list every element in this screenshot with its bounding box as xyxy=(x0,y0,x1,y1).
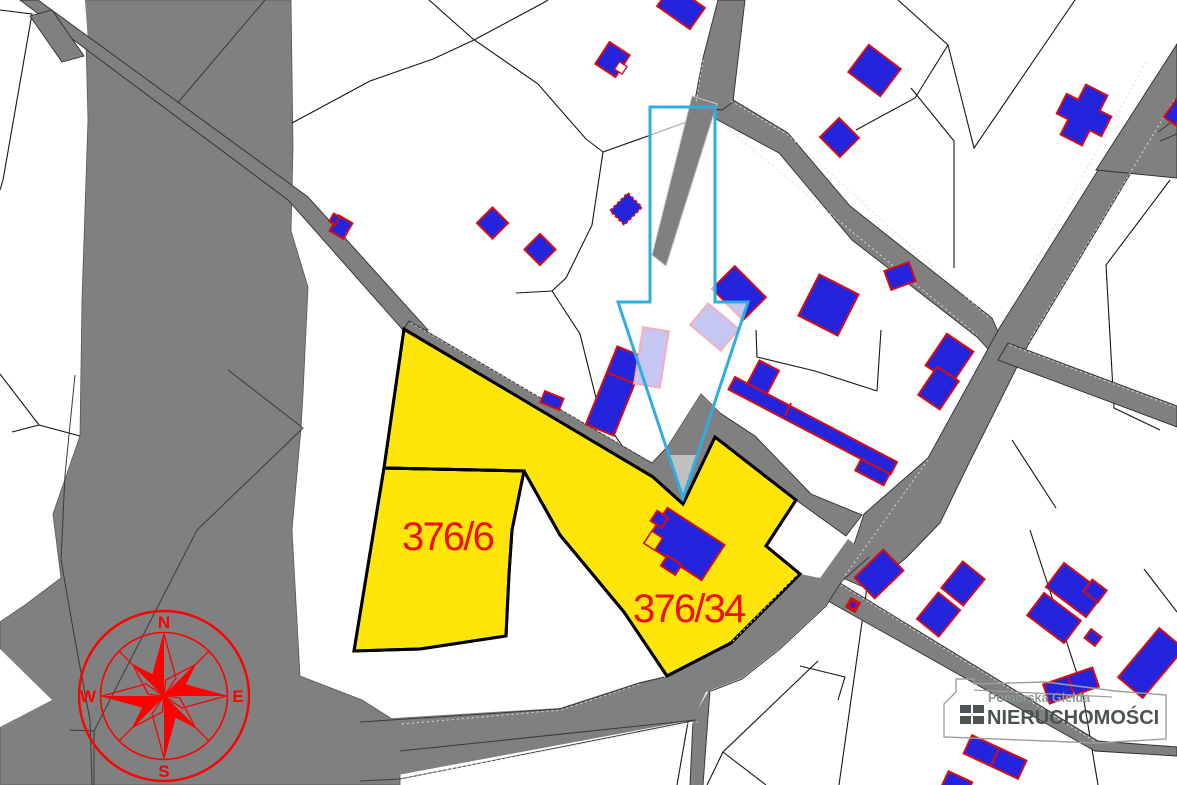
svg-text:376/6: 376/6 xyxy=(402,515,494,559)
svg-text:W: W xyxy=(80,687,97,706)
svg-text:NIERUCHOMOŚCI: NIERUCHOMOŚCI xyxy=(987,705,1159,729)
svg-text:S: S xyxy=(158,762,169,781)
svg-text:E: E xyxy=(232,687,243,706)
svg-text:376/34: 376/34 xyxy=(633,587,746,631)
svg-text:Pomorska Giełda: Pomorska Giełda xyxy=(988,691,1091,705)
svg-text:N: N xyxy=(158,613,170,632)
